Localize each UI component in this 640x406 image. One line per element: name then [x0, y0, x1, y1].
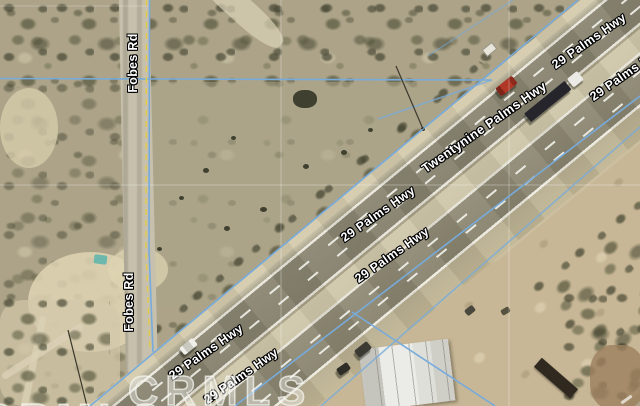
bush	[293, 90, 317, 108]
utility-pole	[421, 127, 425, 131]
aerial-map[interactable]: Fobes Rd Fobes Rd Twentynine Palms Hwy 2…	[0, 0, 640, 406]
terrain-dirt-brown	[590, 345, 640, 406]
bush	[341, 150, 347, 155]
terrain-sand-topleft	[0, 88, 58, 168]
terrain-veg-bottomleft	[0, 295, 110, 406]
bush	[231, 136, 236, 140]
bush	[179, 196, 184, 200]
bush	[224, 226, 230, 231]
building-white-roof	[359, 339, 456, 406]
bush	[303, 164, 309, 169]
crmls-watermark-tile-partial: CRMLS	[0, 398, 166, 406]
bush	[203, 168, 209, 173]
road-label-fobes-rd-bottom: Fobes Rd	[122, 272, 136, 331]
teal-object	[93, 254, 107, 265]
road-label-fobes-rd-top: Fobes Rd	[126, 33, 140, 92]
bush	[368, 128, 373, 132]
bush	[157, 247, 162, 251]
bush	[260, 207, 267, 212]
